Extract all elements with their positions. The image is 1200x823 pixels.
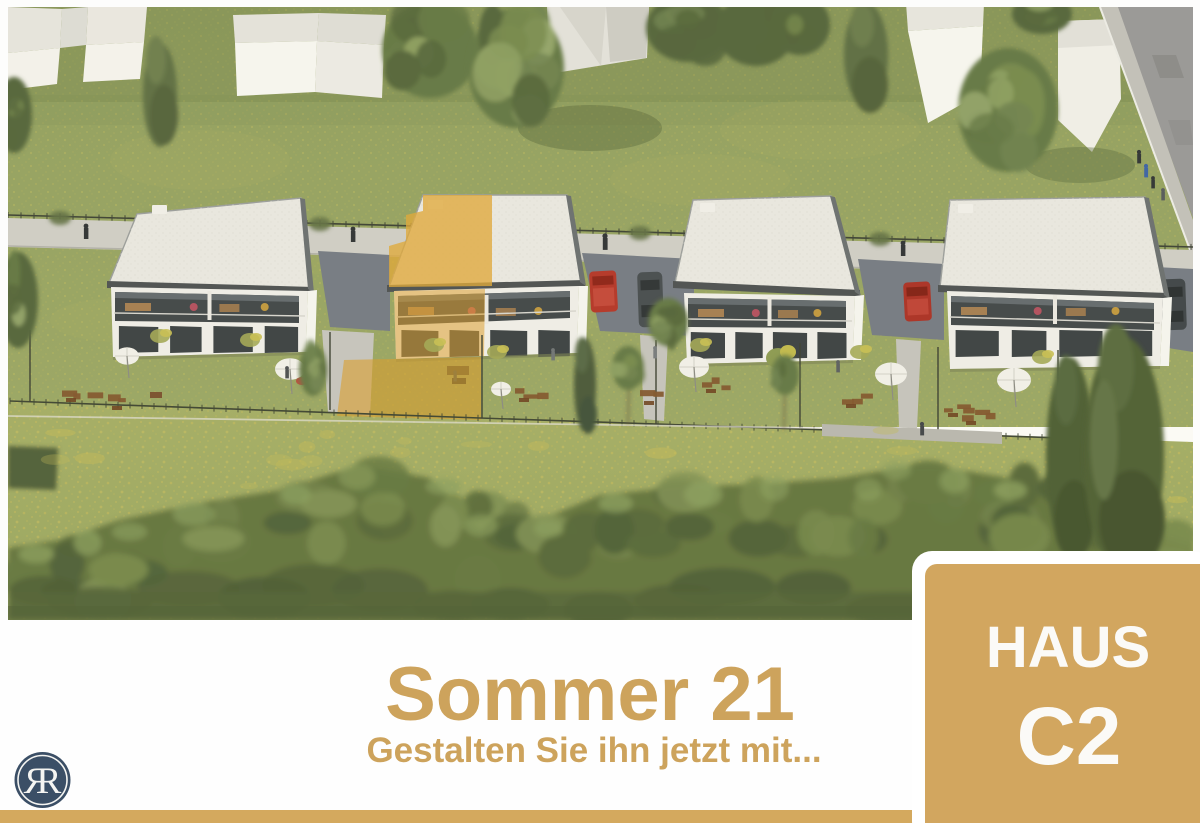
svg-text:R: R [37,761,62,802]
svg-text:Sommer 21: Sommer 21 [385,652,795,737]
svg-text:C2: C2 [1017,691,1122,782]
svg-text:HAUS: HAUS [986,615,1150,680]
svg-text:Gestalten Sie ihn jetzt mit...: Gestalten Sie ihn jetzt mit... [366,731,821,770]
